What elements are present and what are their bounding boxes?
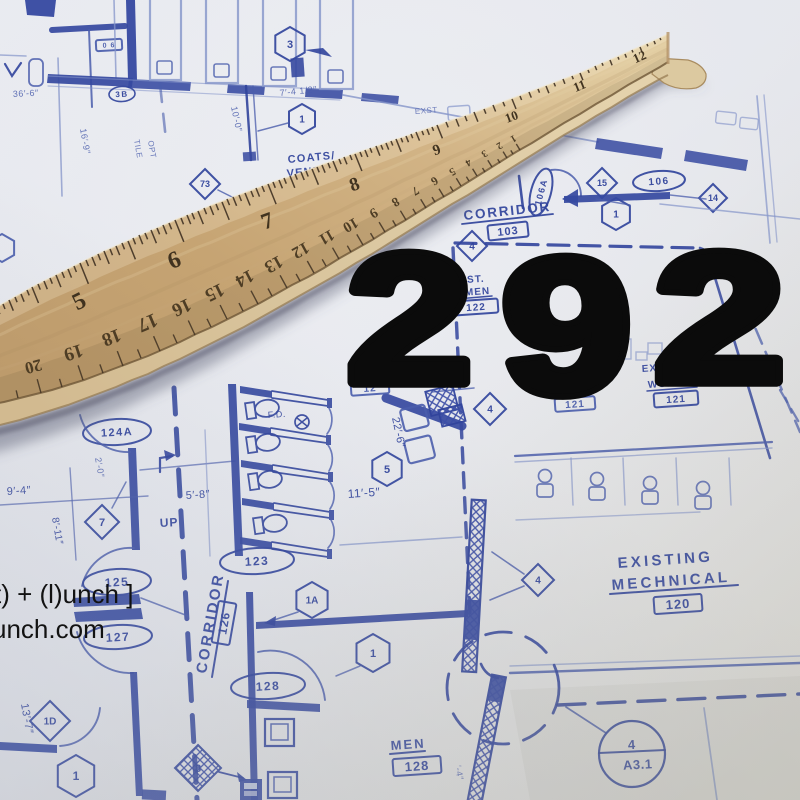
svg-text:9: 9	[502, 220, 632, 433]
svg-text:2: 2	[347, 217, 472, 421]
svg-text:unch.com: unch.com	[0, 614, 105, 644]
svg-text:2: 2	[654, 215, 785, 420]
svg-text:t) + (l)unch ]: t) + (l)unch ]	[0, 579, 133, 609]
